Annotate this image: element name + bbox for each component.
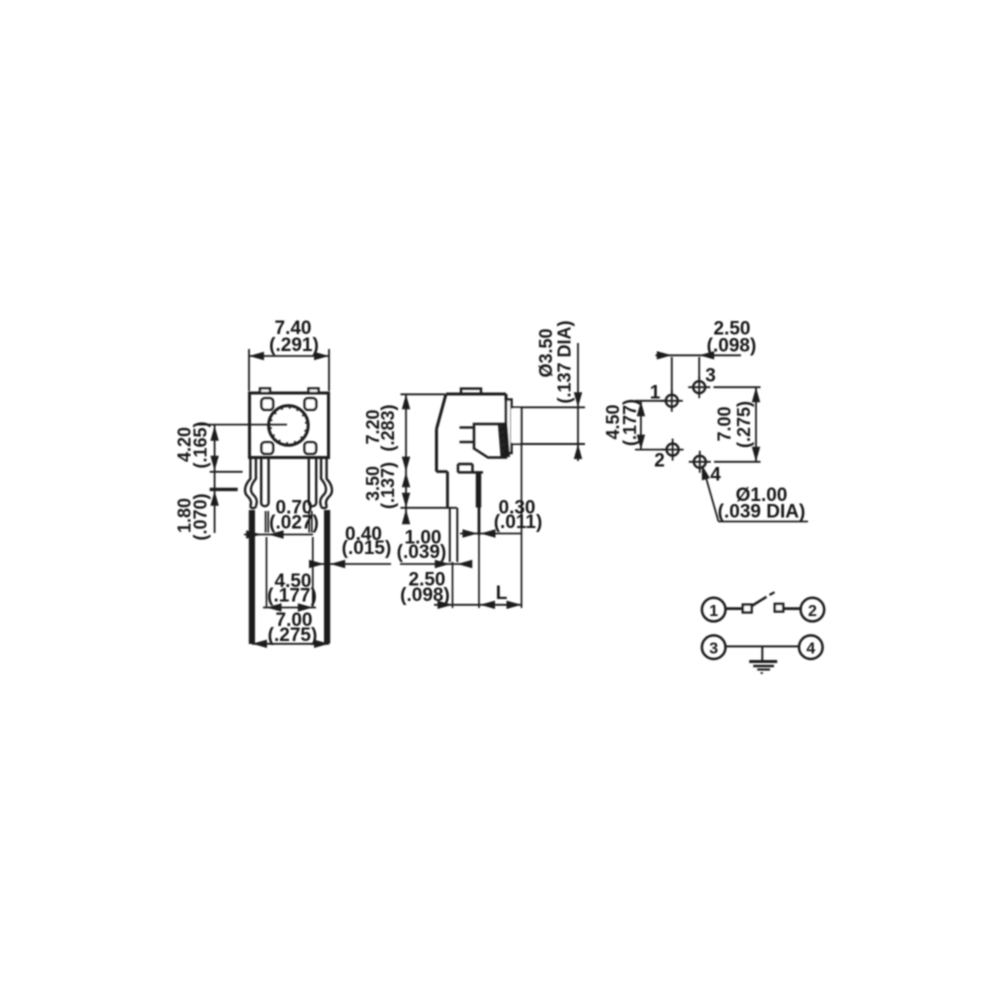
svg-text:4: 4 <box>710 464 721 485</box>
svg-text:1: 1 <box>709 603 718 620</box>
svg-text:(.137): (.137) <box>378 462 398 509</box>
svg-text:2: 2 <box>808 603 817 620</box>
svg-text:L: L <box>496 583 508 604</box>
svg-text:3: 3 <box>705 365 716 386</box>
svg-text:(.027): (.027) <box>269 512 319 533</box>
svg-text:(.283): (.283) <box>378 404 398 451</box>
svg-text:(.291): (.291) <box>269 335 319 356</box>
svg-text:(.177): (.177) <box>267 585 317 606</box>
svg-text:(.039): (.039) <box>397 542 447 563</box>
svg-text:(.275): (.275) <box>734 401 754 448</box>
svg-text:(.011): (.011) <box>494 512 543 533</box>
svg-text:7.00: 7.00 <box>715 406 735 441</box>
svg-text:(.070): (.070) <box>191 493 211 540</box>
svg-text:4: 4 <box>806 641 815 658</box>
svg-text:Ø3.50: Ø3.50 <box>536 328 556 377</box>
svg-text:(.039 DIA): (.039 DIA) <box>718 501 806 522</box>
svg-text:2: 2 <box>654 450 665 471</box>
svg-text:(.165): (.165) <box>191 421 211 468</box>
svg-text:(.275): (.275) <box>268 625 318 646</box>
svg-text:(.177): (.177) <box>620 399 640 446</box>
svg-text:(.137 DIA): (.137 DIA) <box>555 320 575 403</box>
svg-text:(.015): (.015) <box>342 538 392 559</box>
svg-text:3: 3 <box>709 641 718 658</box>
